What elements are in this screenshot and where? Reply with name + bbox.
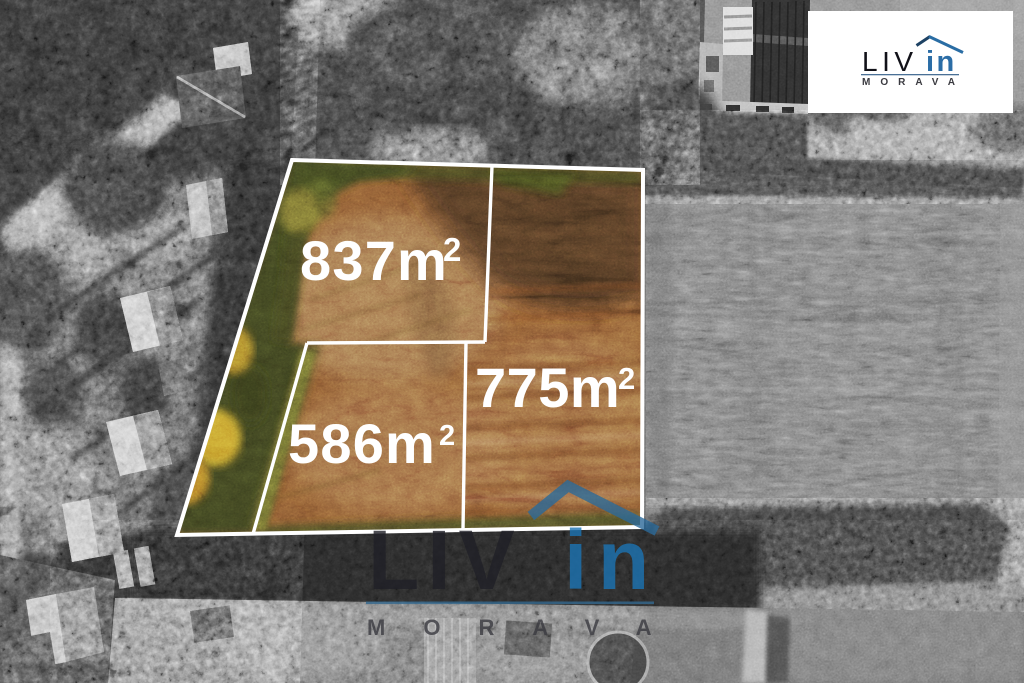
- svg-text:in: in: [926, 46, 957, 78]
- svg-text:LIV: LIV: [368, 513, 523, 607]
- svg-text:LIV: LIV: [862, 46, 918, 77]
- svg-text:837m: 837m: [300, 229, 448, 292]
- svg-text:2: 2: [618, 361, 635, 396]
- svg-text:775m: 775m: [475, 356, 620, 419]
- svg-text:2: 2: [439, 420, 455, 452]
- svg-text:2: 2: [443, 231, 461, 268]
- svg-text:586m: 586m: [288, 412, 436, 475]
- svg-text:MORAVA: MORAVA: [367, 615, 690, 640]
- svg-text:MORAVA: MORAVA: [862, 77, 965, 88]
